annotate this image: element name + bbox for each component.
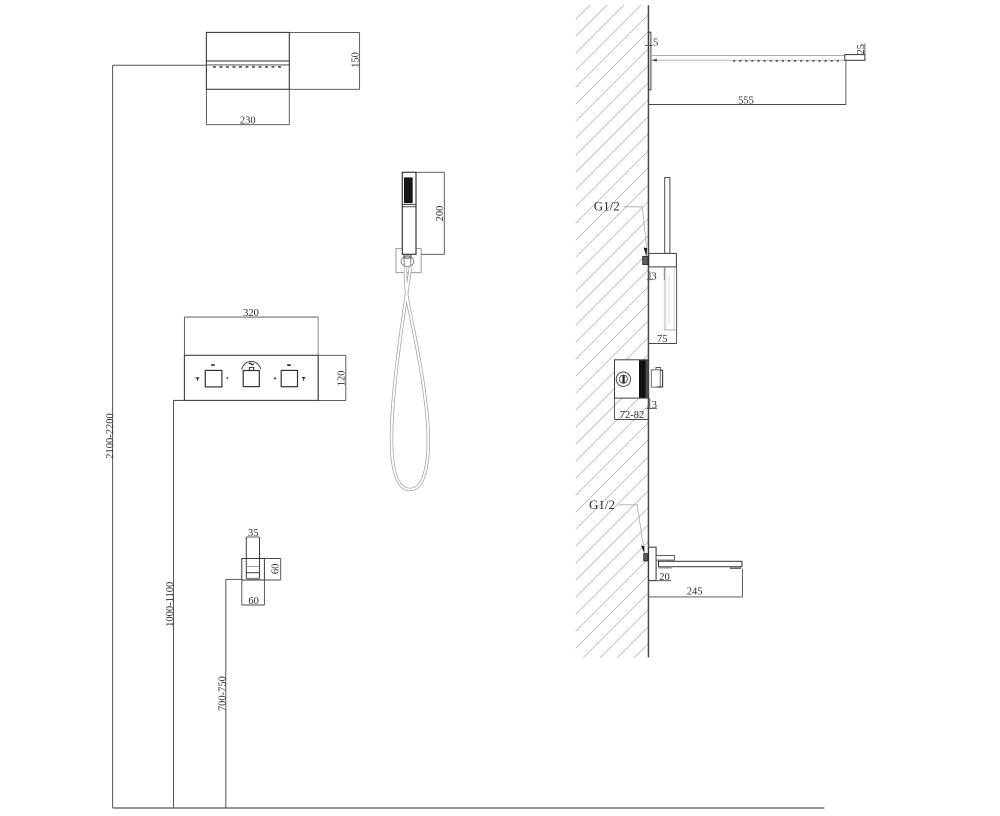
svg-text:200: 200 xyxy=(435,206,446,222)
svg-text:3: 3 xyxy=(652,400,657,411)
svg-text:120: 120 xyxy=(337,371,348,387)
svg-text:60: 60 xyxy=(271,564,282,575)
svg-text:G1/2: G1/2 xyxy=(589,497,615,512)
svg-text:320: 320 xyxy=(243,308,259,319)
svg-text:G1/2: G1/2 xyxy=(594,198,620,213)
svg-text:150: 150 xyxy=(350,52,361,68)
svg-text:700-750: 700-750 xyxy=(217,676,228,711)
svg-text:60: 60 xyxy=(248,596,259,607)
svg-text:20: 20 xyxy=(659,572,670,583)
svg-text:3: 3 xyxy=(651,271,656,282)
svg-text:2100-2200: 2100-2200 xyxy=(105,413,116,459)
svg-text:245: 245 xyxy=(687,587,703,598)
svg-text:35: 35 xyxy=(248,528,259,539)
svg-text:1000-1100: 1000-1100 xyxy=(165,582,176,627)
svg-text:555: 555 xyxy=(738,95,754,106)
svg-text:230: 230 xyxy=(240,116,256,127)
svg-text:5: 5 xyxy=(653,38,658,49)
svg-text:25: 25 xyxy=(856,44,867,55)
svg-text:75: 75 xyxy=(657,334,668,345)
svg-text:72-82: 72-82 xyxy=(620,410,645,421)
